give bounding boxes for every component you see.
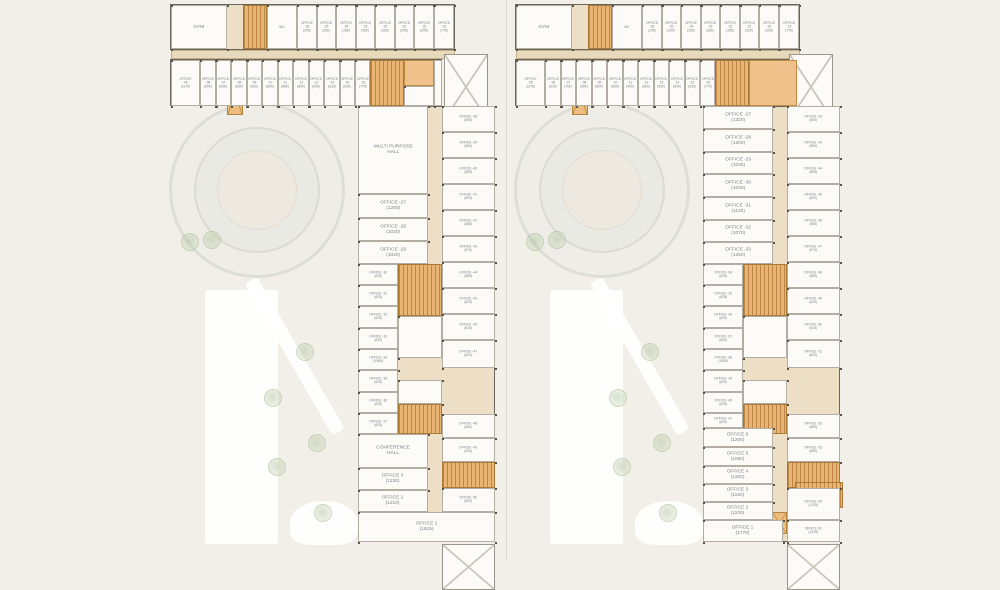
office-room: OFFICE -38 (1060) (703, 349, 743, 370)
site-plan-canvas: GYMWCOFFICE -26 (295)OFFICE -25 (290)OFF… (0, 0, 1000, 562)
column-marker (703, 306, 705, 308)
office-room: OFFICE -08 (980) (576, 60, 592, 106)
column-marker (358, 490, 360, 492)
column-marker (442, 158, 444, 160)
column-marker (703, 285, 705, 287)
room-label: OFFICE -19 (775) (783, 21, 795, 32)
room-label: OFFICE 1 (1615) (416, 521, 438, 532)
column-marker (231, 106, 233, 108)
office-room: OFFICE -54 (1015) (787, 488, 840, 520)
office-room: OFFICE -46 (615) (442, 314, 495, 340)
office-room: OFFICE 2 (1210) (358, 490, 428, 512)
column-marker (642, 5, 644, 7)
room-label: OFFICE -08 (630) (233, 77, 245, 88)
room-label: OFFICE -39 (580) (460, 141, 478, 149)
column-marker (787, 158, 789, 160)
office-room: OFFICE -47 (570) (787, 236, 840, 262)
room-label: OFFICE -37 (625) (369, 420, 387, 428)
room-label: OFFICE -21 (290) (743, 21, 755, 32)
column-marker (638, 60, 640, 62)
office-room: OFFICE -05 (1175) (516, 60, 545, 106)
office-room (743, 380, 787, 404)
column-marker (703, 466, 705, 468)
column-marker (840, 210, 842, 212)
column-marker (215, 60, 217, 62)
column-marker (773, 152, 775, 154)
column-marker (783, 520, 785, 522)
column-marker (703, 484, 705, 486)
room-label: OFFICE -09 (690) (248, 77, 260, 88)
office-room: OFFICE -11 (400) (623, 60, 639, 106)
office-room: OFFICE -24 (285) (681, 5, 701, 49)
column-marker (442, 210, 444, 212)
room-label: OFFICE -14 (630) (326, 77, 338, 88)
column-marker (339, 60, 341, 62)
room-label: OFFICE -54 (1015) (805, 500, 823, 508)
column-marker (572, 5, 574, 7)
office-room: OFFICE -09 (690) (247, 60, 263, 106)
room-label: OFFICE -36 (625) (714, 313, 732, 321)
room-label: OFFICE 4 (1200) (727, 469, 749, 480)
office-room: OFFICE -16 (775) (355, 60, 370, 106)
room-label: OFFICE -50 (600) (460, 496, 478, 504)
stair-core (743, 264, 787, 316)
room-label: OFFICE -05 (1175) (523, 77, 538, 88)
column-marker (358, 392, 360, 394)
tree-icon (268, 458, 286, 476)
floor-plan-right: GYMWCOFFICE -26 (295)OFFICE -25 (290)OFF… (515, 4, 845, 544)
room-label: OFFICE -16 (775) (356, 77, 368, 88)
column-marker (840, 520, 842, 522)
room-label: OFFICE -39 (625) (714, 377, 732, 385)
column-marker (358, 512, 360, 514)
column-marker (773, 220, 775, 222)
column-marker (442, 132, 444, 134)
column-marker (773, 428, 775, 430)
room-label: OFFICE -28 (1030) (380, 224, 406, 235)
office-room: OFFICE -42 (585) (442, 210, 495, 236)
room-label: OFFICE 5 (1090) (727, 451, 749, 462)
office-room: OFFICE 4 (1200) (703, 466, 773, 484)
column-marker (375, 49, 377, 51)
column-marker (358, 370, 360, 372)
office-room: OFFICE -50 (600) (442, 488, 495, 512)
room-label: OFFICE -16 (770) (701, 77, 713, 88)
column-marker (171, 5, 173, 7)
column-marker (495, 462, 497, 464)
column-marker (339, 106, 341, 108)
column-marker (703, 520, 705, 522)
office-room: OFFICE -06 (630) (545, 60, 561, 106)
room-label: GYM (539, 24, 550, 30)
column-marker (231, 60, 233, 62)
building-zone (171, 50, 455, 59)
office-room: OFFICE -37 (625) (358, 413, 398, 434)
column-marker (840, 462, 842, 464)
stair-core (398, 264, 442, 316)
column-marker (622, 60, 624, 62)
room-label: OFFICE 3 (1150) (727, 487, 749, 498)
office-room: OFFICE -25 (290) (662, 5, 682, 49)
column-marker (358, 413, 360, 415)
office-room: OFFICE -49 (630) (442, 438, 495, 462)
room-label: OFFICE -46 (585) (805, 219, 823, 227)
room-label: OFFICE -12 (860) (640, 77, 652, 88)
column-marker (200, 106, 202, 108)
column-marker (442, 288, 444, 290)
column-marker (516, 5, 518, 7)
office-room: OFFICE -52 (860) (787, 414, 840, 438)
column-marker (358, 106, 360, 108)
column-marker (336, 49, 338, 51)
room-label: OFFICE -20 (295) (763, 21, 775, 32)
tree-icon (609, 389, 627, 407)
column-marker (495, 542, 497, 544)
room-label: OFFICE -25 (290) (665, 21, 677, 32)
room-label: OFFICE -32 (625) (369, 313, 387, 321)
column-marker (703, 542, 705, 544)
room-label: OFFICE 6 (1200) (727, 432, 749, 443)
column-marker (495, 438, 497, 440)
column-marker (703, 392, 705, 394)
column-marker (799, 5, 801, 7)
column-marker (560, 106, 562, 108)
office-room: OFFICE -44 (595) (787, 158, 840, 184)
column-marker (454, 49, 456, 51)
tree-icon (526, 233, 544, 251)
room-label: OFFICE -29 (1020) (380, 247, 406, 258)
column-marker (442, 404, 444, 406)
column-marker (703, 502, 705, 504)
column-marker (495, 236, 497, 238)
room-label: OFFICE -22 (285) (379, 21, 391, 32)
office-room: OFFICE -46 (585) (787, 210, 840, 236)
room-label: OFFICE -19 (775) (438, 21, 450, 32)
column-marker (591, 106, 593, 108)
column-marker (324, 60, 326, 62)
office-room: OFFICE -33 (1260) (703, 242, 773, 264)
column-marker (560, 60, 562, 62)
column-marker (703, 197, 705, 199)
column-marker (428, 490, 430, 492)
column-marker (669, 60, 671, 62)
office-room: OFFICE -40 (625) (703, 392, 743, 413)
column-marker (277, 106, 279, 108)
room-label: OFFICE -13 (500) (655, 77, 667, 88)
column-marker (743, 370, 745, 372)
column-marker (653, 60, 655, 62)
office-room: OFFICE -45 (625) (442, 288, 495, 314)
room-label: OFFICE -50 (615) (805, 323, 823, 331)
walkway-path (550, 290, 623, 544)
column-marker (171, 60, 173, 62)
column-marker (171, 106, 173, 108)
column-marker (700, 5, 702, 7)
office-room (434, 60, 442, 106)
column-marker (787, 236, 789, 238)
office-room: GYM (171, 5, 227, 49)
office-room: OFFICE 5 (1090) (703, 447, 773, 466)
column-marker (442, 438, 444, 440)
room-label: OFFICE -47 (620) (460, 350, 478, 358)
column-marker (308, 106, 310, 108)
column-marker (316, 49, 318, 51)
column-marker (840, 414, 842, 416)
column-marker (773, 502, 775, 504)
column-marker (316, 5, 318, 7)
column-marker (495, 488, 497, 490)
room-label: OFFICE -35 (625) (714, 292, 732, 300)
column-marker (778, 5, 780, 7)
office-room: OFFICE -44 (565) (442, 262, 495, 288)
office-room: CONFERENCE HALL (358, 434, 428, 468)
office-room: OFFICE -48 (565) (787, 262, 840, 288)
column-marker (495, 414, 497, 416)
room-label: OFFICE -44 (595) (805, 167, 823, 175)
room-label: OFFICE 1 (1770) (732, 525, 754, 536)
column-marker (700, 49, 702, 51)
room-label: OFFICE -43 (570) (460, 245, 478, 253)
column-marker (545, 106, 547, 108)
room-label: OFFICE -35 (625) (369, 377, 387, 385)
column-marker (495, 262, 497, 264)
column-marker (428, 218, 430, 220)
office-room: OFFICE -10 (890) (262, 60, 278, 106)
column-marker (495, 184, 497, 186)
room-label: OFFICE -25 (290) (320, 21, 332, 32)
column-marker (398, 370, 400, 372)
column-marker (840, 488, 842, 490)
column-marker (358, 194, 360, 196)
column-marker (703, 370, 705, 372)
room-label: OFFICE -34 (625) (714, 271, 732, 279)
column-marker (358, 241, 360, 243)
room-label: CONFERENCE HALL (376, 445, 410, 456)
column-marker (661, 49, 663, 51)
office-room: OFFICE -35 (625) (703, 285, 743, 306)
room-label: OFFICE -48 (565) (805, 271, 823, 279)
column-marker (787, 368, 789, 370)
room-label: GYM (194, 24, 205, 30)
office-room: OFFICE -50 (615) (787, 314, 840, 340)
column-marker (591, 60, 593, 62)
room-label: OFFICE -44 (565) (460, 271, 478, 279)
column-marker (787, 542, 789, 544)
column-marker (703, 349, 705, 351)
room-label: OFFICE -24 (285) (340, 21, 352, 32)
stair-core (442, 462, 495, 488)
column-marker (495, 512, 497, 514)
office-room (398, 316, 442, 358)
column-marker (495, 158, 497, 160)
column-marker (358, 306, 360, 308)
office-room: OFFICE -53 (890) (787, 438, 840, 462)
column-marker (246, 60, 248, 62)
column-marker (759, 49, 761, 51)
column-marker (404, 86, 406, 88)
column-marker (840, 236, 842, 238)
room-label: OFFICE -42 (585) (460, 219, 478, 227)
page-divider-line (506, 0, 507, 562)
column-marker (787, 288, 789, 290)
column-marker (297, 5, 299, 7)
column-marker (398, 316, 400, 318)
room-label: OFFICE -40 (625) (714, 399, 732, 407)
office-room: OFFICE -31 (1120) (703, 197, 773, 220)
column-marker (684, 106, 686, 108)
landscape-circle-ring (217, 150, 296, 229)
room-label: OFFICE -05 (1170) (178, 77, 193, 88)
column-marker (375, 5, 377, 7)
office-room: OFFICE -14 (840) (669, 60, 685, 106)
office-room: OFFICE -26 (295) (642, 5, 662, 49)
office-room: OFFICE -33 (630) (358, 328, 398, 349)
office-room: MULTI PURPOSE HALL (358, 106, 428, 194)
column-marker (358, 285, 360, 287)
office-room: OFFICE -31 (625) (358, 285, 398, 306)
column-marker (787, 414, 789, 416)
column-marker (394, 49, 396, 51)
office-room: OFFICE -13 (500) (654, 60, 670, 106)
room-label: WC (624, 25, 630, 29)
column-marker (277, 60, 279, 62)
office-room: OFFICE 2 (1100) (703, 502, 773, 520)
column-marker (684, 60, 686, 62)
room-label: OFFICE -45 (600) (805, 193, 823, 201)
column-marker (358, 468, 360, 470)
room-label: OFFICE -23 (280) (359, 21, 371, 32)
column-marker (840, 368, 842, 370)
column-marker (227, 5, 229, 7)
column-marker (227, 49, 229, 51)
column-marker (293, 106, 295, 108)
column-marker (355, 49, 357, 51)
room-label: OFFICE -11 (880) (279, 77, 291, 88)
room-label: OFFICE -40 (595) (460, 167, 478, 175)
office-room: OFFICE -27 (1200) (358, 194, 428, 218)
office-room: OFFICE -11 (880) (278, 60, 294, 106)
column-marker (787, 520, 789, 522)
column-marker (653, 106, 655, 108)
office-room: OFFICE -23 (280) (356, 5, 376, 49)
column-marker (681, 5, 683, 7)
office-room: OFFICE -30 (625) (358, 264, 398, 285)
column-marker (840, 288, 842, 290)
room-label: OFFICE -10 (600) (609, 77, 621, 88)
column-marker (759, 5, 761, 7)
room-label: OFFICE -27 (1320) (725, 112, 751, 123)
column-marker (787, 314, 789, 316)
office-room: OFFICE -19 (775) (779, 5, 800, 49)
column-marker (743, 316, 745, 318)
column-marker (171, 49, 173, 51)
column-marker (262, 106, 264, 108)
column-marker (739, 5, 741, 7)
column-marker (428, 468, 430, 470)
room-label: OFFICE -20 (295) (418, 21, 430, 32)
office-room: OFFICE -36 (625) (703, 306, 743, 328)
room-label: OFFICE -47 (570) (805, 245, 823, 253)
room-label: OFFICE 02 (1315) (805, 527, 822, 535)
room-label: OFFICE -34 (1060) (369, 356, 387, 364)
column-marker (720, 49, 722, 51)
office-room: OFFICE -19 (775) (434, 5, 455, 49)
column-marker (576, 60, 578, 62)
office-room: WC (612, 5, 642, 49)
office-room (743, 316, 787, 358)
office-room: OFFICE -15 (630) (340, 60, 356, 106)
office-room: OFFICE -30 (1030) (703, 174, 773, 197)
column-marker (516, 106, 518, 108)
column-marker (516, 60, 518, 62)
column-marker (703, 328, 705, 330)
office-room: OFFICE -12 (860) (638, 60, 654, 106)
column-marker (787, 210, 789, 212)
room-label: OFFICE -27 (1200) (380, 200, 406, 211)
room-label: MULTI PURPOSE HALL (374, 144, 413, 155)
column-marker (703, 174, 705, 176)
column-marker (293, 60, 295, 62)
room-label: OFFICE -49 (630) (460, 446, 478, 454)
column-marker (840, 542, 842, 544)
room-label: OFFICE 2 (1210) (382, 495, 404, 506)
column-marker (773, 129, 775, 131)
room-label: OFFICE -43 (580) (805, 141, 823, 149)
column-marker (297, 49, 299, 51)
column-marker (669, 106, 671, 108)
office-room: OFFICE -51 (620) (787, 340, 840, 368)
room-label: OFFICE -31 (625) (369, 292, 387, 300)
column-marker (840, 340, 842, 342)
tree-icon (308, 434, 326, 452)
room-label: OFFICE -33 (1260) (725, 247, 751, 258)
room-label: OFFICE -51 (620) (805, 350, 823, 358)
stair-core (588, 5, 612, 49)
room-label: OFFICE -33 (630) (369, 335, 387, 343)
office-room: OFFICE -29 (1030) (703, 152, 773, 174)
core-room (749, 60, 797, 106)
tree-icon (659, 504, 677, 522)
room-label: OFFICE -10 (890) (264, 77, 276, 88)
room-label: OFFICE 3 (1230) (382, 473, 404, 484)
stair-core (398, 404, 442, 434)
office-room: OFFICE -45 (600) (787, 184, 840, 210)
stair-core (715, 60, 749, 106)
office-room (404, 86, 434, 106)
room-label: OFFICE -09 (800) (593, 77, 605, 88)
column-marker (442, 380, 444, 382)
tree-icon (653, 434, 671, 452)
tree-icon (641, 343, 659, 361)
column-marker (414, 49, 416, 51)
building-zone (516, 50, 800, 59)
office-room: OFFICE -22 (285) (375, 5, 395, 49)
column-marker (358, 328, 360, 330)
column-marker (703, 220, 705, 222)
landscape-circle-ring (562, 150, 641, 229)
office-room: OFFICE -38 (605) (442, 106, 495, 132)
room-label: OFFICE -13 (690) (310, 77, 322, 88)
column-marker (773, 447, 775, 449)
office-room: OFFICE -48 (650) (442, 414, 495, 438)
room-label: OFFICE 2 (1100) (727, 505, 749, 516)
room-label: OFFICE -41 (600) (460, 193, 478, 201)
tree-icon (613, 458, 631, 476)
column-marker (394, 5, 396, 7)
office-room: OFFICE -32 (1070) (703, 220, 773, 242)
ramp-room (787, 544, 840, 590)
column-marker (495, 288, 497, 290)
